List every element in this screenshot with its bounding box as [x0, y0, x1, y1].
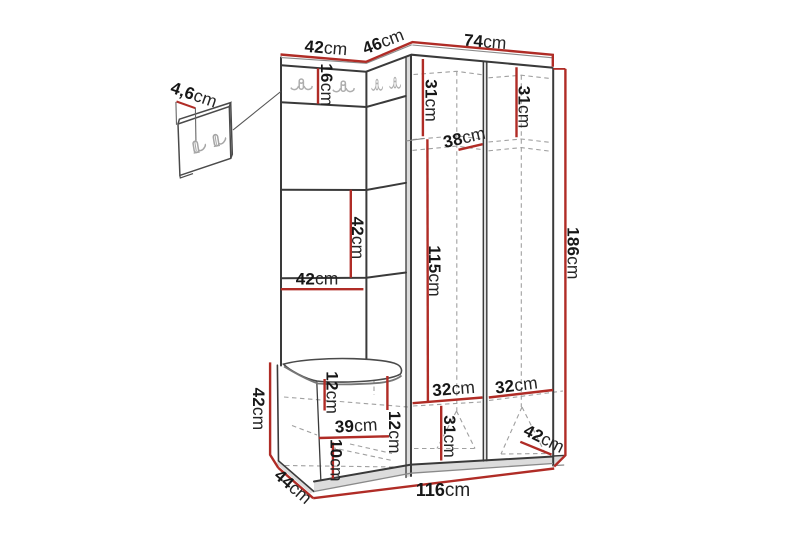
- svg-text:42cm: 42cm: [249, 388, 269, 431]
- svg-text:74cm: 74cm: [463, 30, 507, 53]
- svg-text:42cm: 42cm: [296, 269, 339, 289]
- svg-text:115cm: 115cm: [425, 245, 445, 296]
- svg-text:12cm: 12cm: [385, 411, 405, 454]
- svg-text:39cm: 39cm: [334, 414, 378, 436]
- svg-text:32cm: 32cm: [431, 377, 475, 400]
- svg-text:116cm: 116cm: [416, 480, 470, 501]
- svg-text:10cm: 10cm: [327, 439, 347, 482]
- svg-text:12cm: 12cm: [323, 371, 343, 414]
- svg-text:31cm: 31cm: [515, 86, 535, 129]
- svg-text:16cm: 16cm: [317, 63, 337, 106]
- svg-text:42cm: 42cm: [304, 36, 348, 59]
- svg-text:31cm: 31cm: [440, 415, 460, 458]
- svg-text:31cm: 31cm: [422, 79, 442, 122]
- svg-text:186cm: 186cm: [563, 227, 583, 279]
- svg-text:42cm: 42cm: [348, 217, 368, 260]
